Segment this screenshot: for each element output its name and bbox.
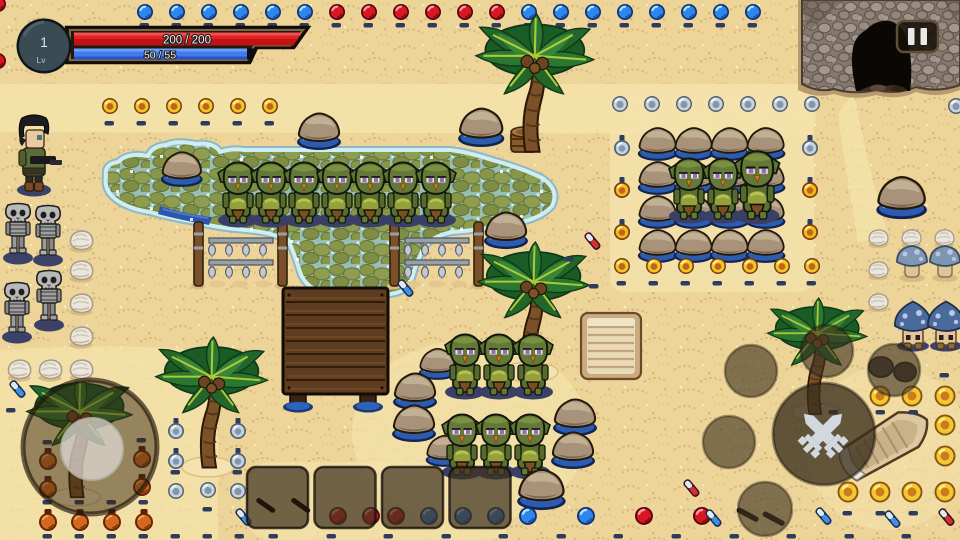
svg-text:200 / 200: 200 / 200	[163, 35, 211, 47]
svg-text:1: 1	[40, 35, 48, 50]
svg-text:Lv: Lv	[37, 55, 47, 65]
svg-text:50 / 55: 50 / 55	[144, 50, 176, 62]
